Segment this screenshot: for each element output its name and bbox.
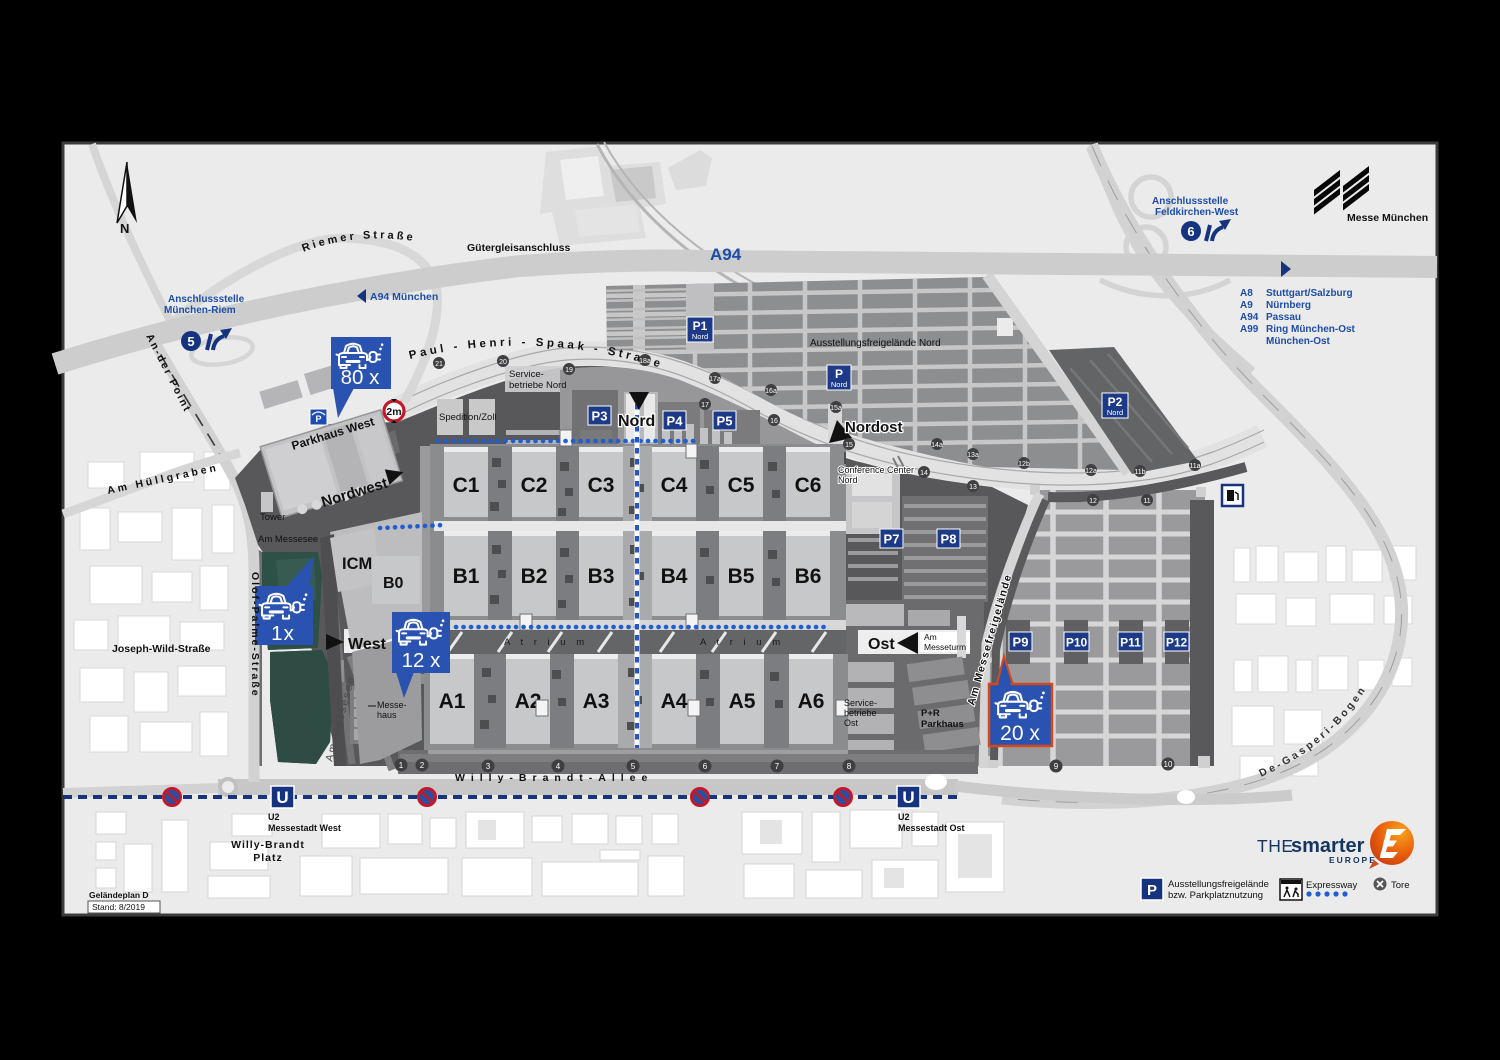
svg-text:A94: A94 [1240, 312, 1259, 323]
svg-text:Parkhaus: Parkhaus [921, 719, 964, 730]
svg-text:13: 13 [969, 484, 977, 491]
svg-text:A94: A94 [710, 245, 742, 264]
svg-text:THE: THE [1257, 836, 1294, 856]
svg-text:München-Ost: München-Ost [1266, 336, 1331, 347]
svg-text:Ost: Ost [868, 636, 895, 653]
svg-text:München-Riem: München-Riem [164, 305, 236, 316]
svg-text:Passau: Passau [1266, 312, 1301, 323]
svg-text:9: 9 [1054, 762, 1059, 771]
svg-text:B4: B4 [661, 565, 688, 588]
svg-text:Service-: Service- [509, 369, 544, 380]
svg-text:Expressway: Expressway [1306, 880, 1357, 891]
svg-text:Messe München: Messe München [1347, 212, 1428, 224]
svg-text:12b: 12b [1018, 461, 1030, 468]
svg-text:80 x: 80 x [341, 366, 380, 389]
svg-text:B6: B6 [795, 565, 822, 588]
svg-text:A1: A1 [439, 690, 466, 713]
svg-text:1x: 1x [271, 622, 295, 645]
svg-text:Messestadt West: Messestadt West [268, 823, 341, 833]
svg-text:C5: C5 [728, 474, 755, 497]
svg-text:Am: Am [924, 632, 937, 642]
svg-text:Messe-: Messe- [377, 700, 407, 710]
svg-text:1: 1 [399, 761, 404, 770]
svg-text:Messestadt Ost: Messestadt Ost [898, 823, 965, 833]
svg-text:P10: P10 [1066, 636, 1088, 650]
svg-text:15: 15 [845, 442, 853, 449]
svg-text:Willy-Brandt: Willy-Brandt [231, 839, 305, 851]
svg-text:P7: P7 [884, 532, 900, 547]
svg-text:B3: B3 [588, 565, 615, 588]
svg-text:12 x: 12 x [402, 649, 441, 672]
svg-text:Platz: Platz [253, 852, 283, 864]
svg-text:A5: A5 [729, 690, 756, 713]
svg-text:18a: 18a [639, 358, 651, 365]
svg-text:A3: A3 [583, 690, 610, 713]
svg-text:A9: A9 [1240, 300, 1253, 311]
svg-text:betriebe Nord: betriebe Nord [509, 380, 567, 391]
svg-text:bzw. Parkplatznutzung: bzw. Parkplatznutzung [1168, 890, 1263, 901]
svg-text:17a: 17a [709, 376, 721, 383]
svg-text:6: 6 [1187, 224, 1194, 239]
svg-text:15a: 15a [830, 405, 842, 412]
svg-text:Olof-Palme-Straße: Olof-Palme-Straße [249, 572, 261, 698]
svg-text:Am Messesee: Am Messesee [258, 534, 318, 545]
svg-text:U2: U2 [898, 812, 910, 822]
svg-text:Spedition/Zoll: Spedition/Zoll [439, 412, 497, 423]
svg-text:16a: 16a [765, 388, 777, 395]
svg-text:A t r i u m: A t r i u m [700, 637, 784, 648]
svg-text:P11: P11 [1120, 636, 1141, 650]
svg-text:Ost: Ost [844, 718, 859, 728]
svg-text:N: N [120, 221, 129, 236]
svg-text:P5: P5 [717, 414, 733, 429]
svg-text:P9: P9 [1013, 635, 1029, 650]
svg-text:Anschlussstelle: Anschlussstelle [1152, 196, 1229, 207]
svg-text:8: 8 [847, 762, 852, 771]
svg-text:A99: A99 [1240, 324, 1259, 335]
svg-text:smarter: smarter [1291, 835, 1365, 857]
svg-text:B0: B0 [383, 575, 404, 592]
svg-text:11a: 11a [1189, 463, 1200, 470]
svg-text:16: 16 [770, 418, 778, 425]
svg-text:C2: C2 [521, 474, 548, 497]
svg-text:4: 4 [556, 762, 561, 771]
svg-text:10: 10 [1164, 760, 1173, 769]
svg-text:5: 5 [631, 762, 636, 771]
svg-text:20: 20 [499, 359, 507, 366]
svg-text:Nord: Nord [692, 332, 708, 341]
svg-text:EUROPE: EUROPE [1329, 855, 1377, 865]
svg-text:Tore: Tore [1391, 880, 1409, 891]
svg-text:C3: C3 [588, 474, 615, 497]
svg-text:5: 5 [187, 334, 194, 349]
svg-text:Ausstellungsfreigelände Nord: Ausstellungsfreigelände Nord [810, 338, 941, 349]
svg-text:Tower: Tower [260, 512, 285, 523]
svg-text:21: 21 [435, 361, 443, 368]
svg-text:Service-: Service- [844, 698, 877, 708]
svg-text:B5: B5 [728, 565, 755, 588]
svg-text:U: U [902, 788, 914, 807]
svg-text:Nord: Nord [838, 475, 858, 485]
svg-text:B2: B2 [521, 565, 548, 588]
svg-text:Geländeplan D: Geländeplan D [89, 890, 149, 900]
svg-text:Nord: Nord [831, 380, 847, 389]
svg-text:12a: 12a [1085, 468, 1097, 475]
svg-text:11b: 11b [1134, 469, 1145, 476]
svg-text:Stand: 8/2019: Stand: 8/2019 [92, 902, 145, 912]
svg-text:P4: P4 [667, 414, 684, 429]
svg-text:C4: C4 [661, 474, 688, 497]
svg-text:haus: haus [377, 710, 397, 720]
svg-text:14: 14 [920, 470, 928, 477]
svg-text:ICM: ICM [342, 555, 372, 573]
svg-text:P: P [835, 367, 843, 381]
svg-text:P12: P12 [1166, 636, 1188, 650]
svg-text:Conference Center: Conference Center [838, 465, 914, 475]
svg-text:14a: 14a [931, 442, 943, 449]
svg-text:Ring München-Ost: Ring München-Ost [1266, 324, 1356, 335]
svg-text:U: U [276, 788, 288, 807]
svg-text:A94 München: A94 München [370, 291, 438, 303]
svg-text:Nord: Nord [618, 413, 655, 430]
svg-text:P3: P3 [592, 409, 608, 424]
svg-text:Ausstellungsfreigelände: Ausstellungsfreigelände [1168, 879, 1269, 890]
svg-text:P: P [1147, 882, 1157, 899]
svg-text:Messeturm: Messeturm [924, 642, 966, 652]
svg-text:West: West [348, 636, 387, 653]
svg-text:12: 12 [1089, 498, 1097, 505]
svg-text:Anschlussstelle: Anschlussstelle [168, 294, 245, 305]
svg-text:Joseph-Wild-Straße: Joseph-Wild-Straße [112, 643, 211, 655]
svg-text:6: 6 [703, 762, 708, 771]
svg-text:13a: 13a [967, 452, 979, 459]
svg-text:A6: A6 [798, 690, 825, 713]
svg-text:Nürnberg: Nürnberg [1266, 300, 1311, 311]
svg-text:2: 2 [420, 761, 425, 770]
svg-text:U2: U2 [268, 812, 280, 822]
svg-text:A4: A4 [661, 690, 688, 713]
svg-text:11: 11 [1143, 498, 1150, 505]
svg-text:P+R: P+R [921, 708, 940, 719]
svg-text:20 x: 20 x [1000, 722, 1040, 745]
svg-text:P2: P2 [1108, 395, 1123, 409]
svg-text:Nord: Nord [1107, 408, 1123, 417]
svg-text:P: P [315, 414, 321, 424]
svg-text:2m: 2m [386, 406, 401, 418]
svg-text:Feldkirchen-West: Feldkirchen-West [1155, 207, 1239, 218]
svg-text:Gütergleisanschluss: Gütergleisanschluss [467, 242, 570, 254]
svg-text:P8: P8 [941, 532, 957, 547]
svg-text:betriebe: betriebe [844, 708, 877, 718]
svg-text:B1: B1 [453, 565, 480, 588]
svg-text:17: 17 [701, 402, 709, 409]
svg-text:C1: C1 [453, 474, 480, 497]
svg-text:A8: A8 [1240, 288, 1253, 299]
svg-text:Willy-Brandt-Allee: Willy-Brandt-Allee [455, 772, 653, 784]
svg-text:Nordost: Nordost [845, 419, 903, 436]
svg-text:A t r i u m: A t r i u m [504, 637, 588, 648]
svg-text:19: 19 [565, 367, 573, 374]
svg-text:3: 3 [486, 762, 491, 771]
svg-text:Stuttgart/Salzburg: Stuttgart/Salzburg [1266, 288, 1353, 299]
svg-text:P1: P1 [693, 319, 708, 333]
svg-text:7: 7 [775, 762, 780, 771]
svg-text:C6: C6 [795, 474, 822, 497]
